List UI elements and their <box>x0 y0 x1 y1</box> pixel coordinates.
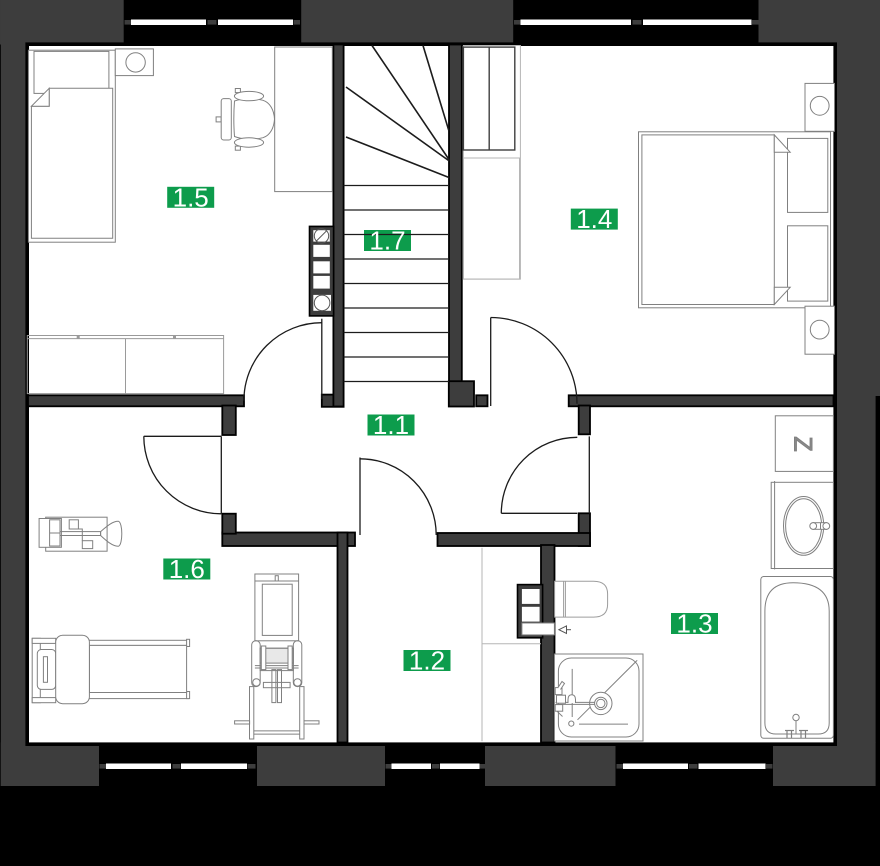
svg-text:1.3: 1.3 <box>676 609 712 639</box>
svg-text:1.6: 1.6 <box>169 554 205 584</box>
svg-text:1.7: 1.7 <box>369 226 405 256</box>
svg-text:1.4: 1.4 <box>576 204 612 234</box>
svg-text:1.5: 1.5 <box>173 182 209 212</box>
svg-text:Z: Z <box>789 436 817 451</box>
svg-text:1.2: 1.2 <box>409 646 445 676</box>
svg-text:1.1: 1.1 <box>373 410 409 440</box>
